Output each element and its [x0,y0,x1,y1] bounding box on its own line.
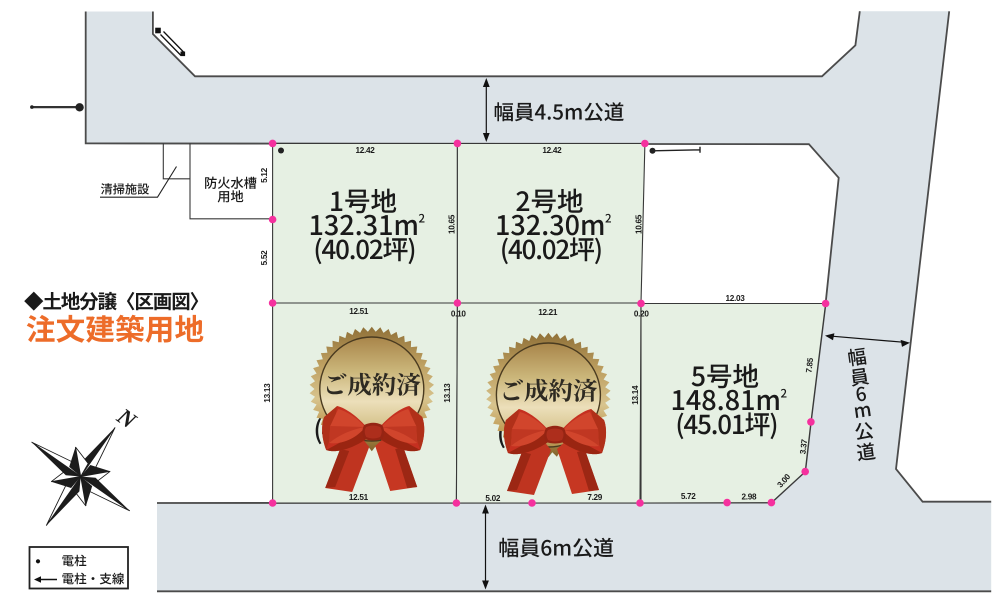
svg-text:5.12: 5.12 [260,167,269,182]
svg-text:13.13: 13.13 [443,383,452,403]
svg-text:12.42: 12.42 [356,146,376,155]
svg-text:0.10: 0.10 [451,309,466,318]
svg-text:5.52: 5.52 [260,250,269,265]
svg-text:12.51: 12.51 [349,307,369,316]
svg-text:7.29: 7.29 [587,493,602,502]
svg-text:3.37: 3.37 [798,438,809,454]
svg-text:5.02: 5.02 [485,494,500,503]
svg-text:13.13: 13.13 [263,383,272,403]
svg-text:12.03: 12.03 [726,294,746,303]
svg-text:10.65: 10.65 [448,214,457,234]
svg-text:12.42: 12.42 [542,146,562,155]
svg-text:12.21: 12.21 [538,308,558,317]
svg-text:12.51: 12.51 [349,493,369,502]
svg-text:5.72: 5.72 [681,492,696,501]
svg-text:7.85: 7.85 [804,357,815,373]
svg-text:10.65: 10.65 [635,214,644,234]
svg-text:13.14: 13.14 [631,385,640,405]
svg-text:2.98: 2.98 [742,493,757,502]
svg-text:0.20: 0.20 [634,309,649,318]
